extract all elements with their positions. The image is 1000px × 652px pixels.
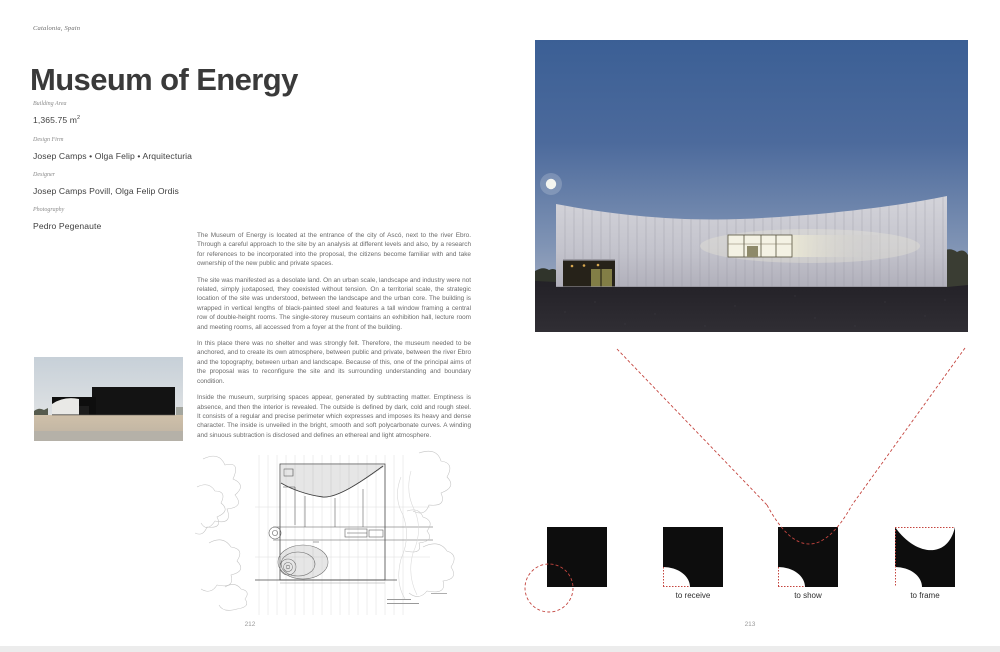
paragraph: In this place there was no shelter and w…	[197, 339, 471, 386]
site-plan-art	[195, 447, 475, 625]
diagram-to-receive	[663, 527, 723, 587]
diagram-label-to-frame: to frame	[895, 591, 955, 600]
credit-value: 1,365.75 m2	[33, 115, 80, 125]
page-edge	[0, 646, 1000, 652]
credit-label: Designer	[33, 172, 253, 178]
credit-label: Building Area	[33, 101, 253, 107]
window	[728, 235, 792, 257]
main-photo	[535, 40, 968, 332]
credit-value: Josep Camps Povill, Olga Felip Ordis	[33, 186, 179, 196]
moon	[546, 179, 556, 189]
annotation-line-left	[617, 349, 767, 505]
diagram-label-to-show: to show	[778, 591, 838, 600]
diagram-label-to-receive: to receive	[663, 591, 723, 600]
diagram-solid-square	[547, 527, 607, 587]
entrance	[563, 259, 615, 288]
credit-value: Josep Camps • Olga Felip • Arquitecturia	[33, 151, 192, 161]
credit-label: Photography	[33, 207, 253, 213]
main-photo-art	[535, 40, 968, 332]
right-page-number: 213	[730, 621, 770, 628]
annotation-line-right	[852, 348, 965, 505]
credit-design-firm: Design Firm Josep Camps • Olga Felip • A…	[33, 137, 253, 164]
location-caption: Catalonia, Spain	[33, 25, 80, 32]
project-description: The Museum of Energy is located at the e…	[197, 231, 471, 447]
thumbnail-photo	[34, 357, 183, 441]
book-spread: Catalonia, Spain Museum of Energy Buildi…	[0, 0, 1000, 652]
diagram-to-frame	[895, 527, 955, 587]
credit-designer: Designer Josep Camps Povill, Olga Felip …	[33, 172, 253, 199]
paragraph: The Museum of Energy is located at the e…	[197, 231, 471, 269]
credit-value: Pedro Pegenaute	[33, 221, 101, 231]
site-plan-drawing	[195, 447, 475, 625]
credit-building-area: Building Area 1,365.75 m2	[33, 101, 253, 128]
credit-photography: Photography Pedro Pegenaute	[33, 207, 253, 234]
paragraph: The site was manifested as a desolate la…	[197, 276, 471, 332]
left-page-number: 212	[230, 621, 270, 628]
credit-label: Design Firm	[33, 137, 253, 143]
page-title: Museum of Energy	[30, 62, 298, 98]
diagram-to-show	[778, 527, 838, 587]
paragraph: Inside the museum, surprising spaces app…	[197, 393, 471, 440]
thumbnail-photo-art	[34, 357, 183, 441]
